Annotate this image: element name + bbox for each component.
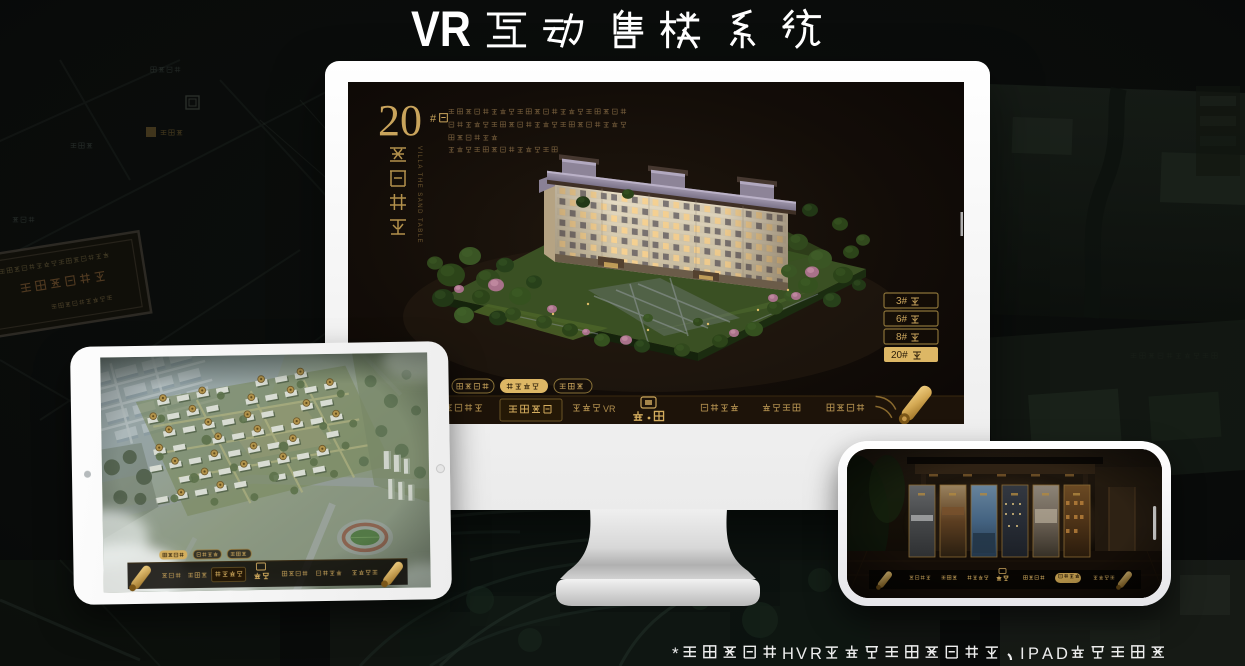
svg-text:R: R [810, 645, 822, 663]
svg-text:#: # [430, 113, 437, 125]
svg-text:VR: VR [411, 4, 471, 57]
svg-text:20: 20 [378, 96, 422, 145]
svg-text:I: I [1020, 645, 1025, 663]
svg-text:D: D [1056, 645, 1068, 663]
svg-text:H: H [782, 645, 794, 663]
svg-text:A: A [1042, 645, 1053, 663]
svg-text:8#: 8# [896, 332, 908, 343]
svg-text:VILLA THE SAND TABLE: VILLA THE SAND TABLE [416, 146, 422, 244]
svg-text:V: V [796, 645, 807, 663]
svg-text:P: P [1028, 645, 1039, 663]
svg-text:6#: 6# [896, 314, 908, 325]
svg-text:20#: 20# [891, 350, 908, 361]
svg-text:3#: 3# [896, 296, 908, 307]
svg-text:*: * [672, 644, 679, 663]
svg-text:VR: VR [603, 404, 616, 414]
